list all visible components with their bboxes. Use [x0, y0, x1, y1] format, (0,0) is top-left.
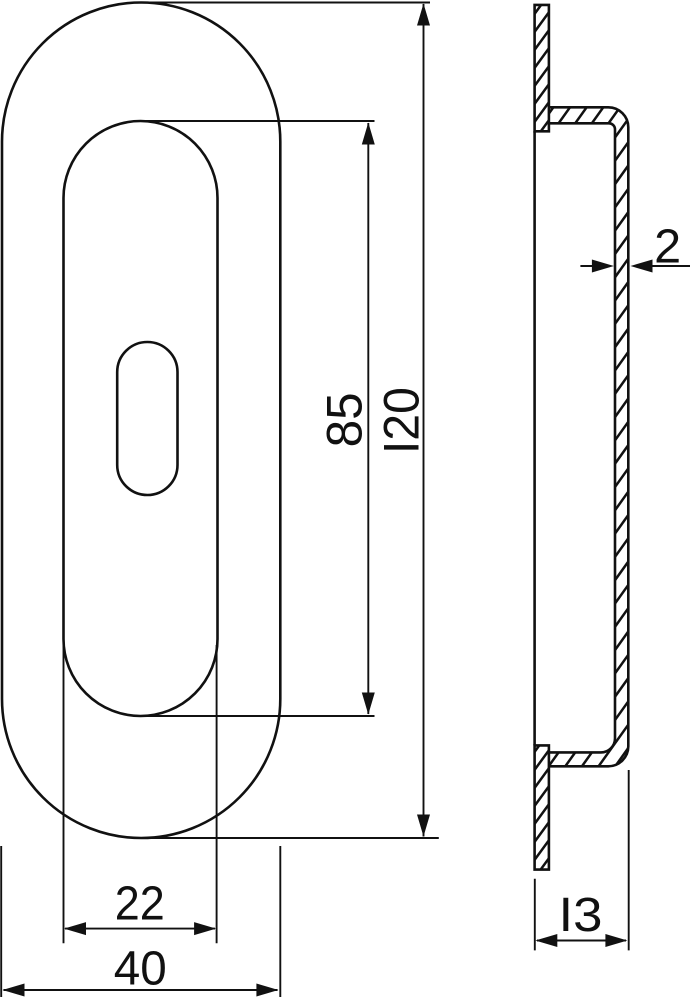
svg-text:40: 40	[114, 941, 167, 995]
svg-text:22: 22	[115, 876, 165, 930]
svg-text:85: 85	[317, 392, 373, 447]
svg-text:I3: I3	[559, 888, 603, 942]
svg-text:2: 2	[654, 220, 681, 274]
svg-text:I20: I20	[373, 387, 429, 454]
